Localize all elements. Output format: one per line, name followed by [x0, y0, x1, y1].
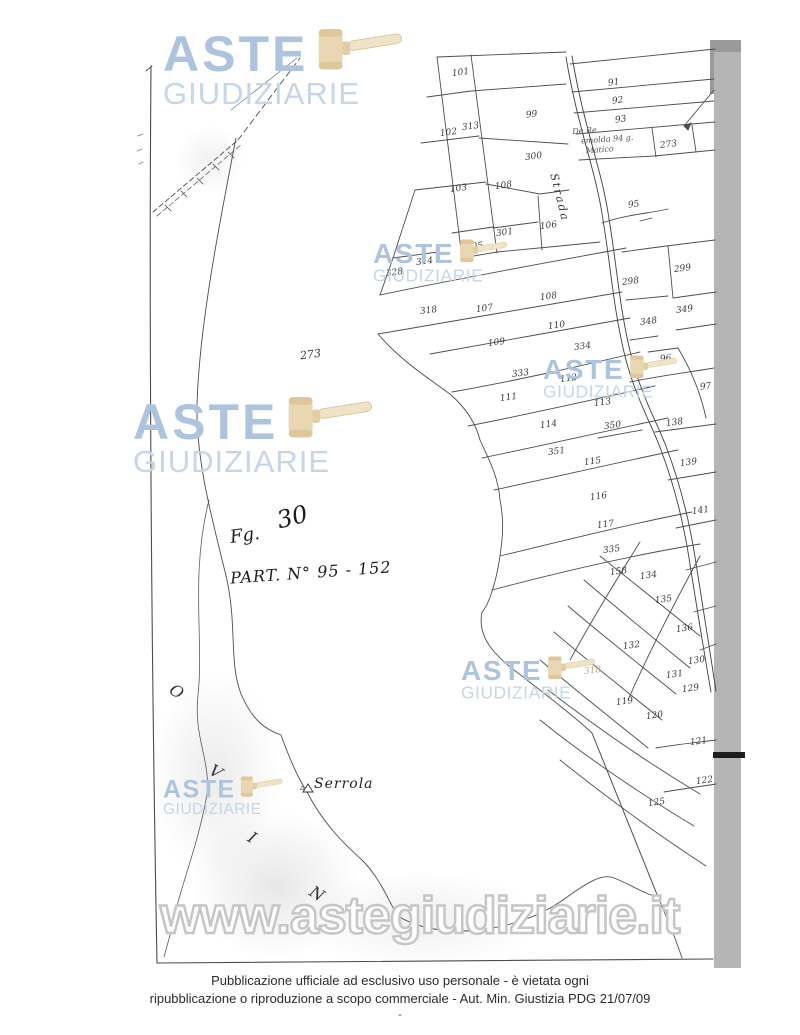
locality-label: Serrola [314, 776, 374, 792]
website-watermark: www.astegiudiziarie.it [160, 886, 679, 946]
parcel-number: 95 [627, 199, 640, 210]
scanned-cadastral-page: 1013139910230010310891929327395106301105… [0, 0, 800, 1035]
parcel-number: 92 [611, 95, 624, 106]
parcel-number: 91 [607, 77, 620, 88]
cadastral-map-lines [0, 0, 800, 1035]
pencil-note-handwriting: De Re emolda 94 g. Matico [572, 123, 634, 157]
parcel-number: 96 [659, 353, 672, 364]
parcel-number: 97 [699, 381, 712, 392]
sheet-label-handwriting: Fg. [229, 523, 261, 548]
publication-footer: Pubblicazione ufficiale ad esclusivo uso… [0, 972, 800, 1022]
parcel-number: 99 [525, 109, 538, 120]
footer-line2: ripubblicazione o riproduzione a scopo c… [0, 990, 800, 1008]
footer-dash: - [0, 1008, 800, 1022]
footer-line1: Pubblicazione ufficiale ad esclusivo uso… [0, 972, 800, 990]
trig-point-icon: ▵ [300, 782, 305, 793]
